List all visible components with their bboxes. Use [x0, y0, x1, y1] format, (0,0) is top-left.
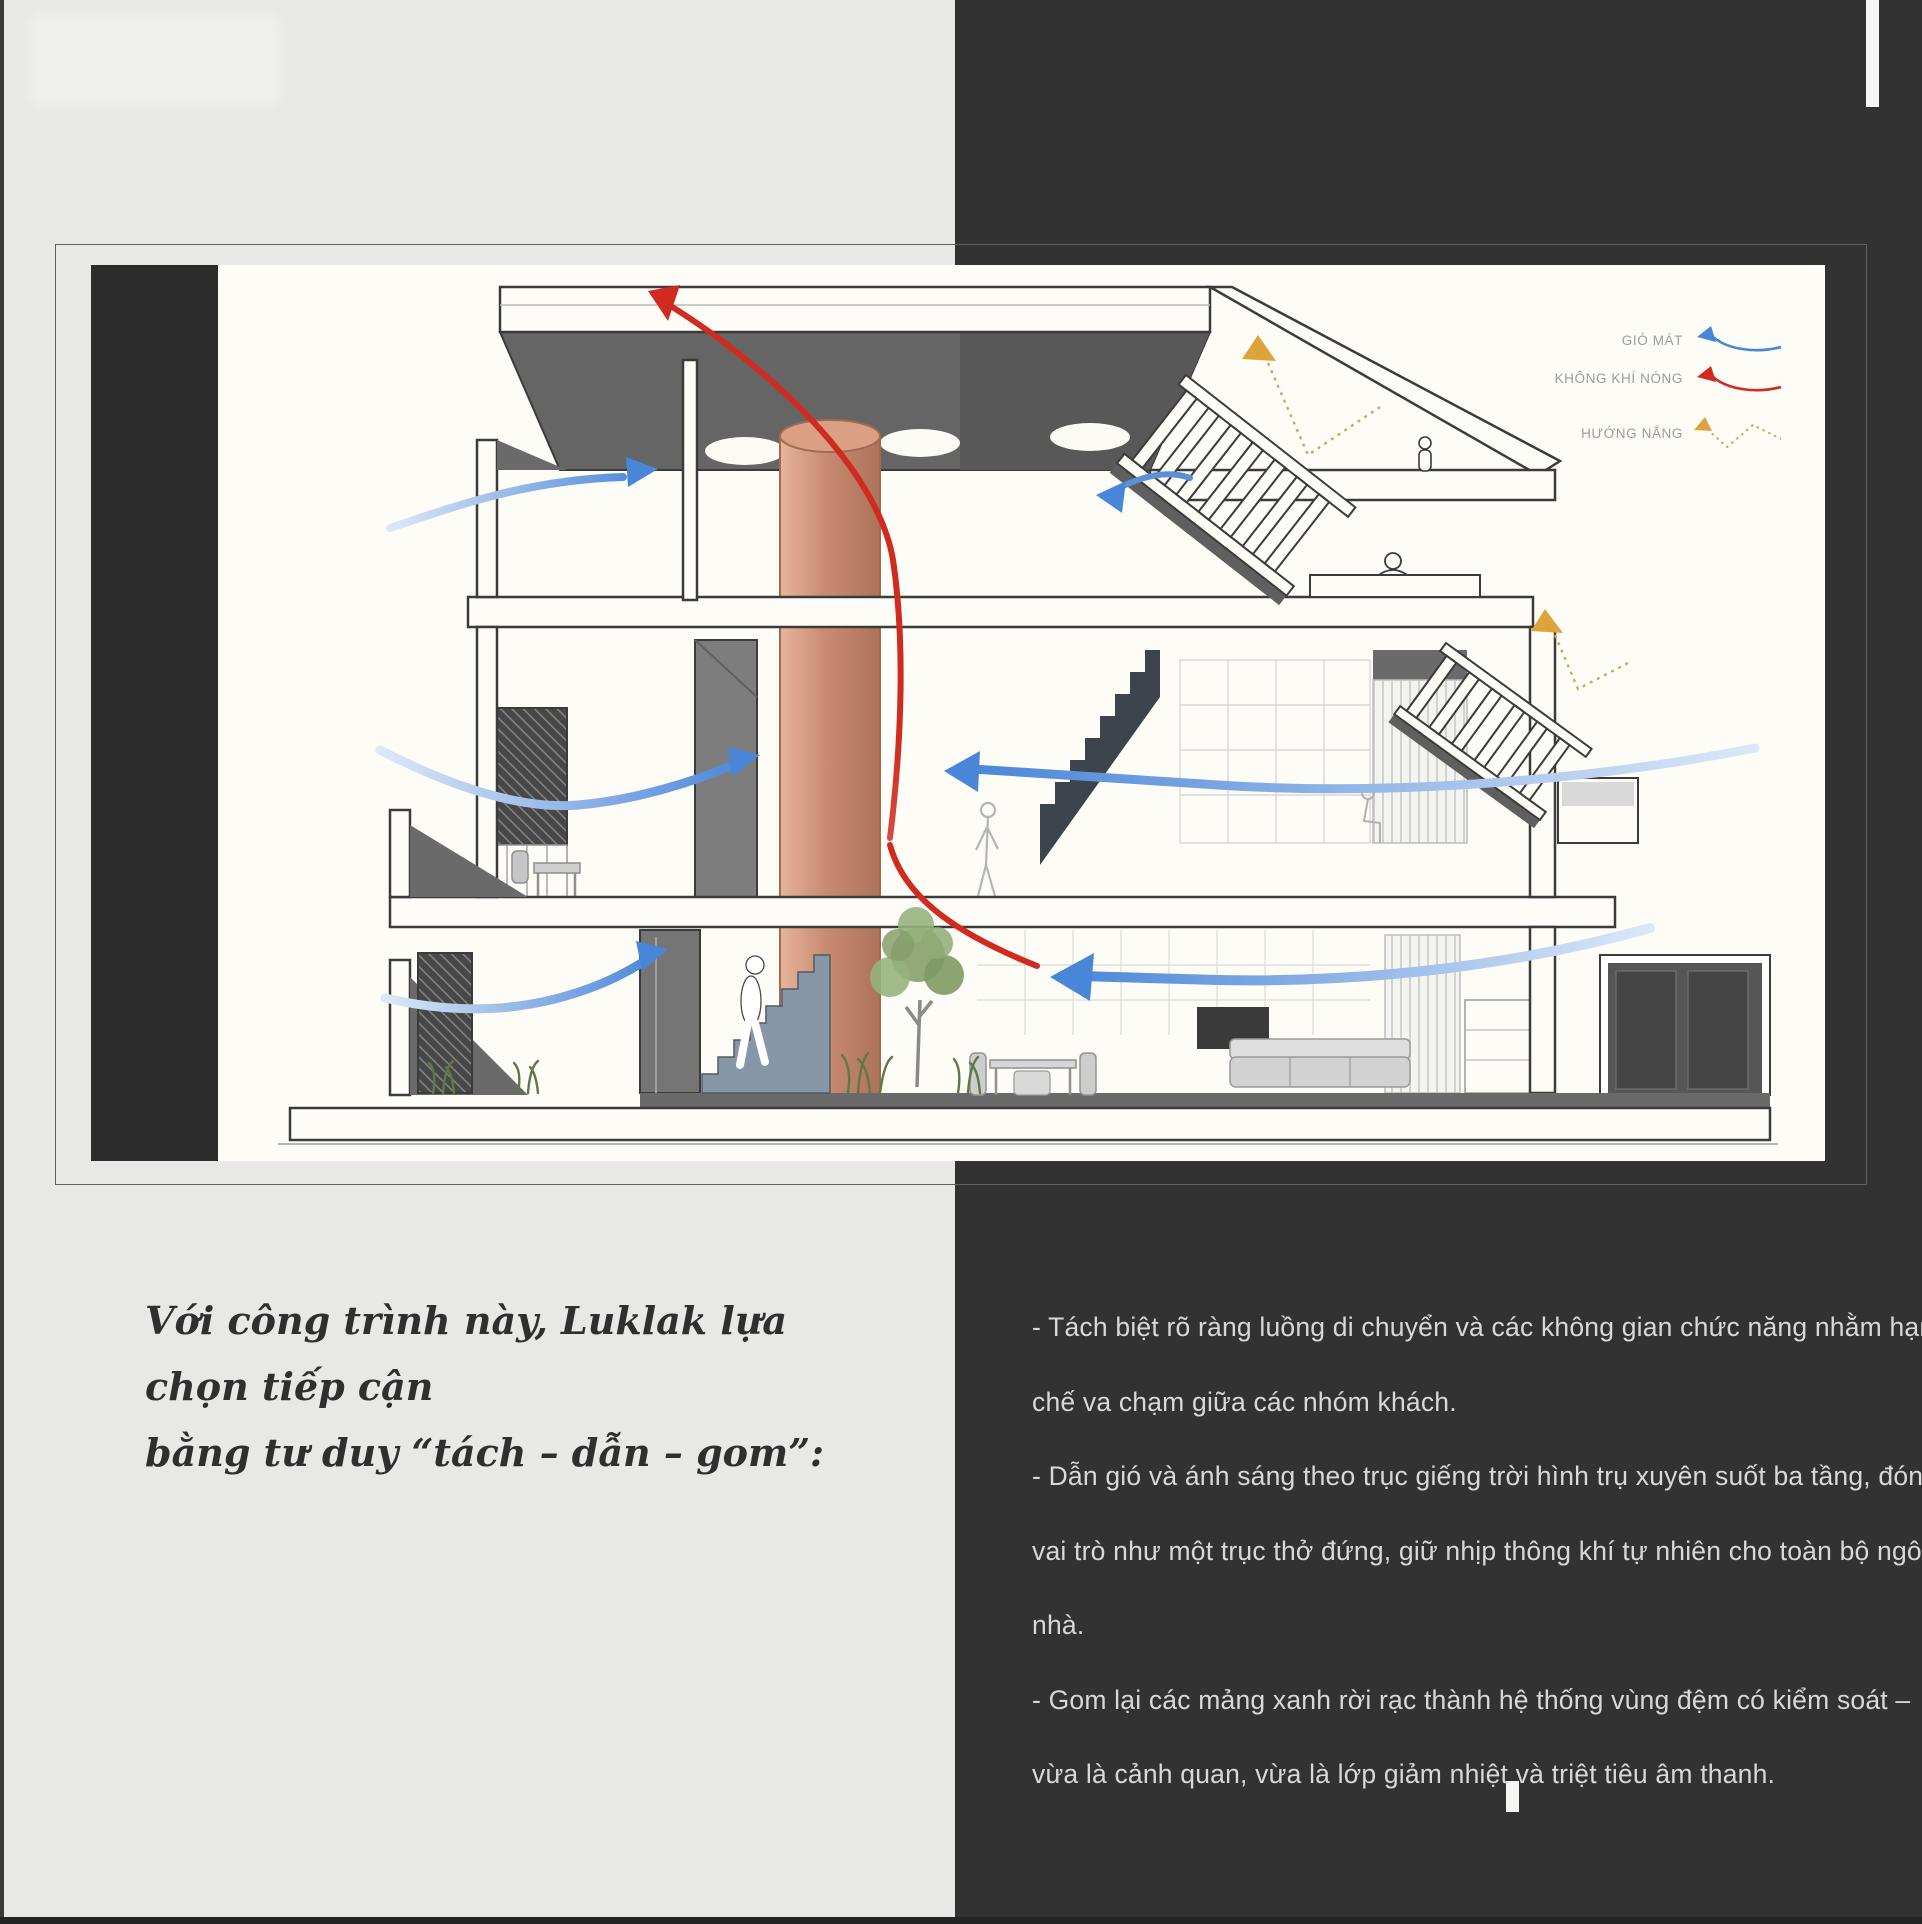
section-diagram-canvas [218, 265, 1825, 1161]
footer-bar [0, 1917, 1922, 1924]
quote-block: Với công trình này, Luklak lựa chọn tiếp… [145, 1288, 885, 1486]
watermark [30, 14, 280, 106]
wing-parapet-mid [390, 810, 410, 897]
bullet-text-block: - Tách biệt rõ ràng luồng di chuyển và c… [1032, 1290, 1842, 1812]
cabinet [1465, 1000, 1530, 1093]
hot-air-arrow-icon [1693, 361, 1785, 395]
top-right-accent-bar [1866, 0, 1879, 107]
second-floor-slab [390, 897, 1615, 927]
person-sketch-standing [976, 803, 998, 896]
sofa [1230, 1039, 1410, 1087]
bullet-line: vai trò như một trục thở đứng, giữ nhịp … [1032, 1514, 1842, 1589]
roof-slab [500, 287, 1210, 332]
bullet-line: nhà. [1032, 1588, 1842, 1663]
base-slab [290, 1108, 1770, 1140]
wing-parapet-ground [390, 960, 410, 1095]
bullet-line: - Tách biệt rõ ràng luồng di chuyển và c… [1032, 1290, 1842, 1365]
tree [870, 907, 964, 1087]
quote-line: bằng tư duy “tách – dẫn – gom”: [145, 1420, 885, 1486]
counter-third-floor [1310, 575, 1480, 597]
legend-label-sun-direction: HƯỚNG NẮNG [1581, 426, 1683, 441]
desk [534, 863, 580, 873]
chair [512, 851, 528, 883]
legend-row-hot-air: KHÔNG KHÍ NÓNG [1493, 361, 1785, 395]
legend-row-cool-wind: GIÓ MÁT [1493, 323, 1785, 357]
quote-line: Với công trình này, Luklak lựa chọn tiếp… [145, 1288, 885, 1420]
stair-lower [702, 955, 830, 1093]
dining-set [970, 1053, 1096, 1095]
legend-label-cool-wind: GIÓ MÁT [1622, 333, 1683, 348]
legend-label-hot-air: KHÔNG KHÍ NÓNG [1555, 371, 1683, 386]
bullet-line: chế va chạm giữa các nhóm khách. [1032, 1365, 1842, 1440]
figure-left-dark-strip [91, 265, 218, 1161]
stair-upper [1040, 650, 1160, 865]
dark-room-right [1600, 955, 1770, 1095]
bullet-line: - Gom lại các mảng xanh rời rạc thành hệ… [1032, 1663, 1842, 1738]
cool-wind-arrow-icon [1693, 323, 1785, 357]
wall-left-upper [477, 440, 497, 597]
bench-right [1558, 778, 1638, 843]
person-terrace [1419, 437, 1431, 471]
person-behind-counter [1376, 553, 1410, 577]
louver-door-ground [418, 953, 472, 1093]
left-edge-line [0, 0, 4, 1924]
bullet-line: vừa là cảnh quan, vừa là lớp giảm nhiệt … [1032, 1737, 1842, 1812]
wall-left-mid [477, 627, 497, 897]
page: { "quote": { "lines": [ "Với công trình … [0, 0, 1922, 1924]
legend-row-sun-direction: HƯỚNG NẮNG [1493, 416, 1785, 450]
bullet-line: - Dẫn gió và ánh sáng theo trục giếng tr… [1032, 1439, 1842, 1514]
sun-direction-arrow-icon [1693, 416, 1785, 450]
floor-dark-band [640, 1093, 1770, 1108]
roof-column [683, 360, 697, 600]
section-diagram [218, 265, 1825, 1161]
third-floor-slab [468, 597, 1533, 627]
